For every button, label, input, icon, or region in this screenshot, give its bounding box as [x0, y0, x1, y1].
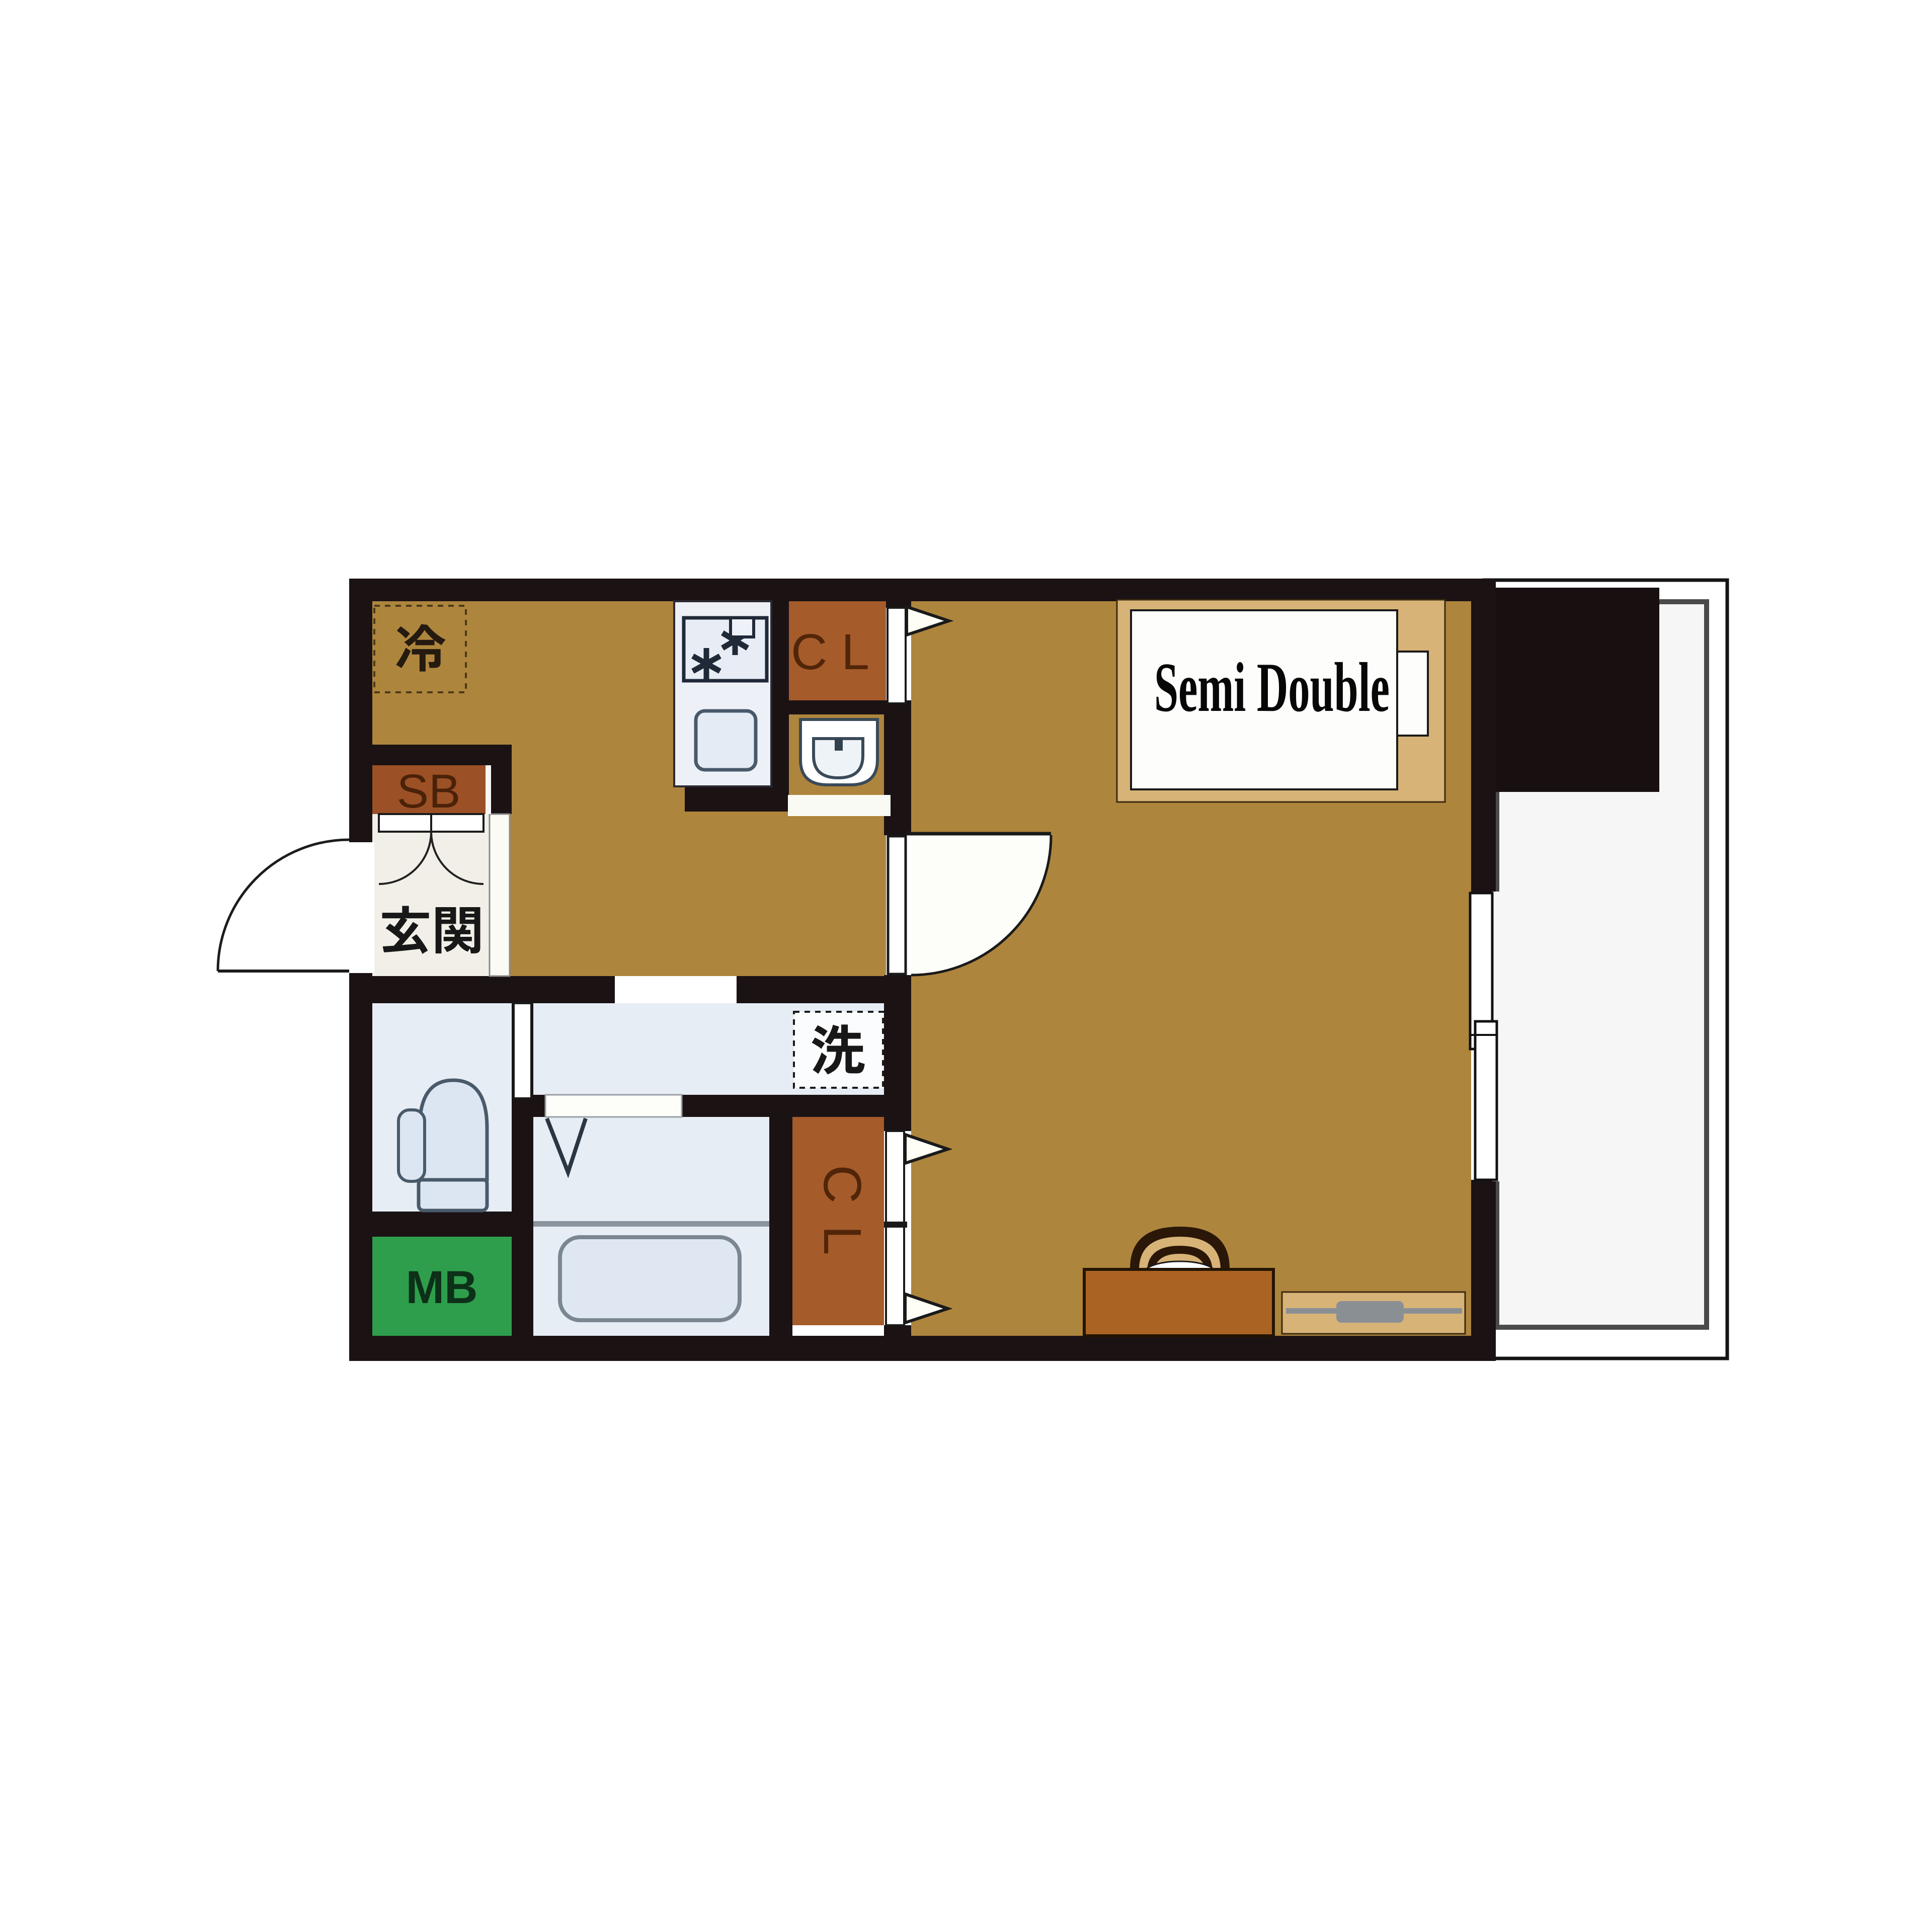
- svg-text:CL: CL: [791, 624, 883, 680]
- svg-text:Semi Double: Semi Double: [1154, 649, 1390, 727]
- svg-text:SB: SB: [397, 765, 461, 818]
- svg-text:MB: MB: [406, 1262, 477, 1313]
- svg-text:CL: CL: [813, 1165, 872, 1277]
